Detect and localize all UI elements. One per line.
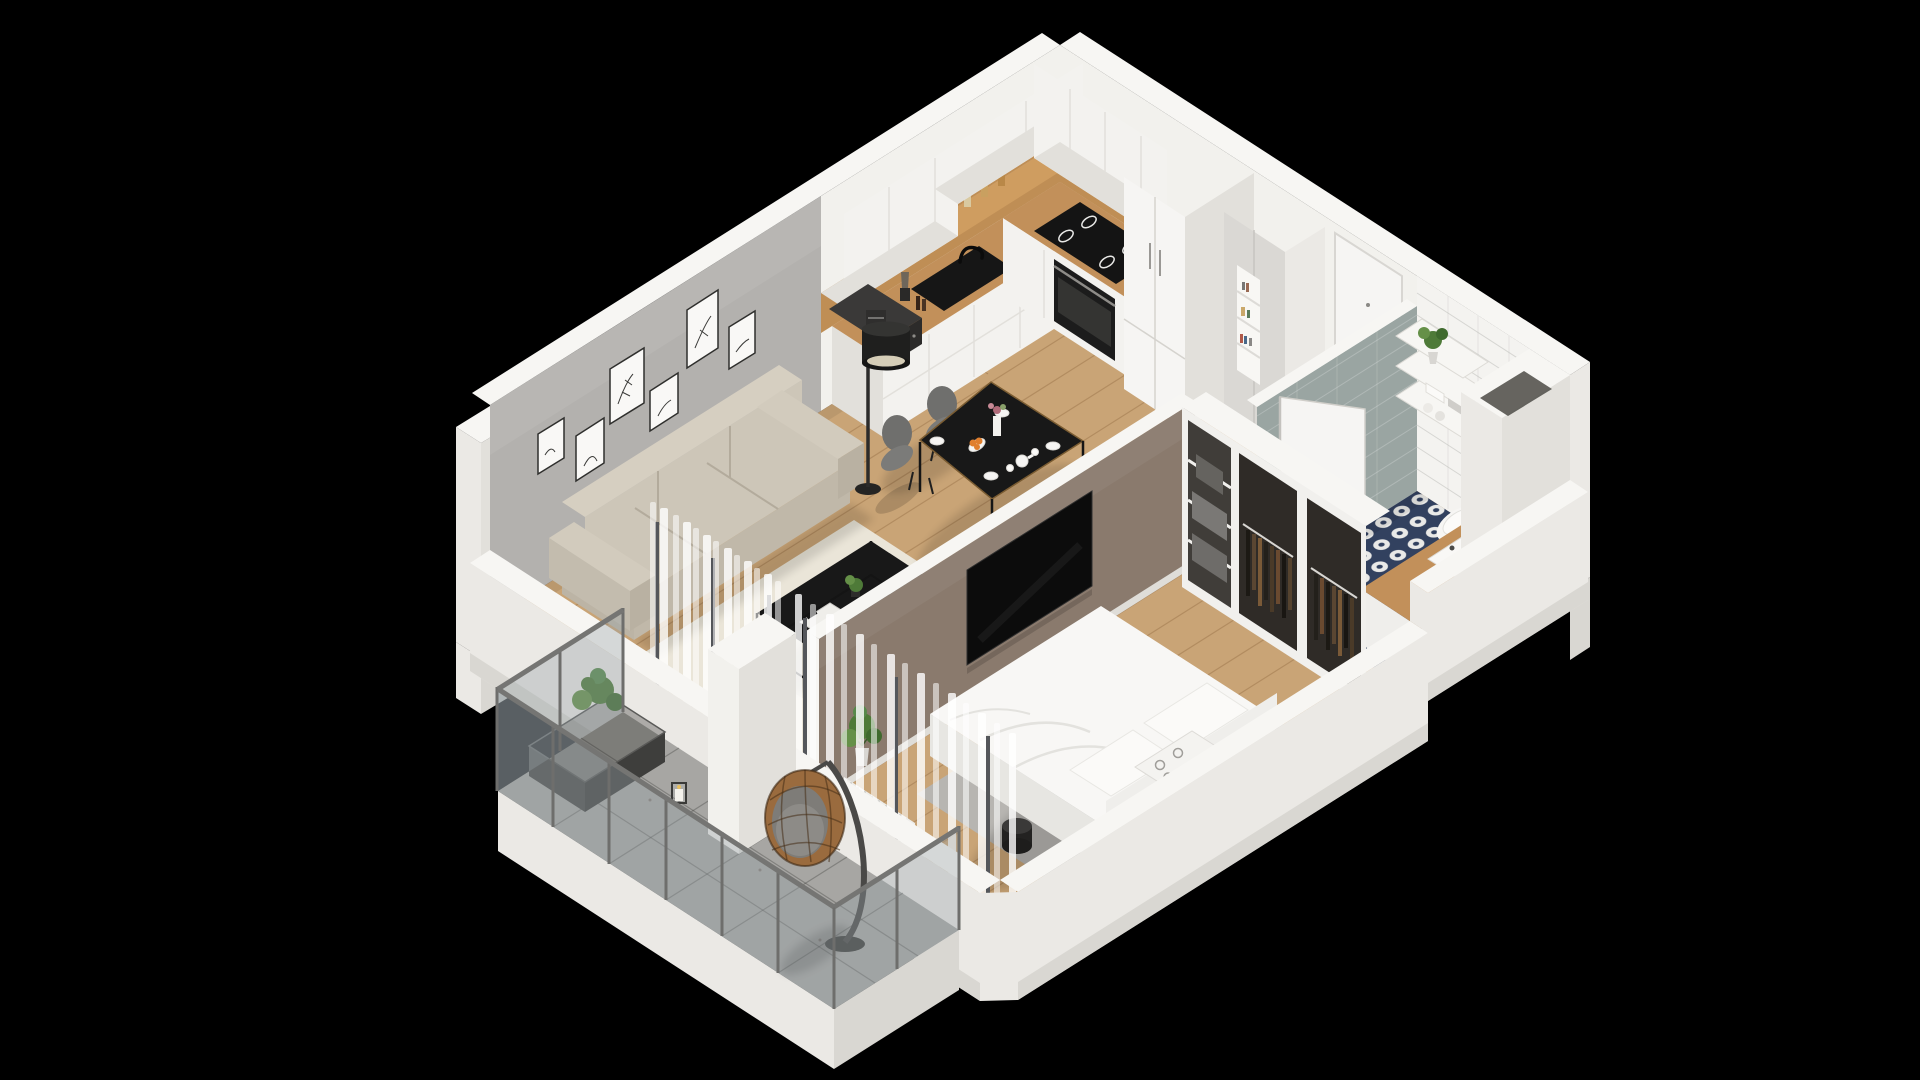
basin-faucet [1450, 546, 1455, 551]
flower-vase [993, 416, 1001, 436]
south-corner-patch [980, 892, 1018, 1001]
lamp-glow [867, 356, 905, 367]
apartment-isometric-render [0, 0, 1920, 1080]
wardrobe-box-shelf [1188, 420, 1231, 608]
towel-roll [1423, 403, 1433, 413]
door-peephole [1366, 303, 1370, 307]
candle-flame [677, 785, 681, 789]
pepper-mill [916, 296, 920, 310]
candle-lantern [672, 783, 686, 803]
bedside-stool [1002, 818, 1032, 854]
towel-roll [1435, 411, 1445, 421]
egg-chair-cushion [776, 804, 824, 856]
teapot [1016, 455, 1028, 467]
pepper-mill [922, 299, 926, 311]
